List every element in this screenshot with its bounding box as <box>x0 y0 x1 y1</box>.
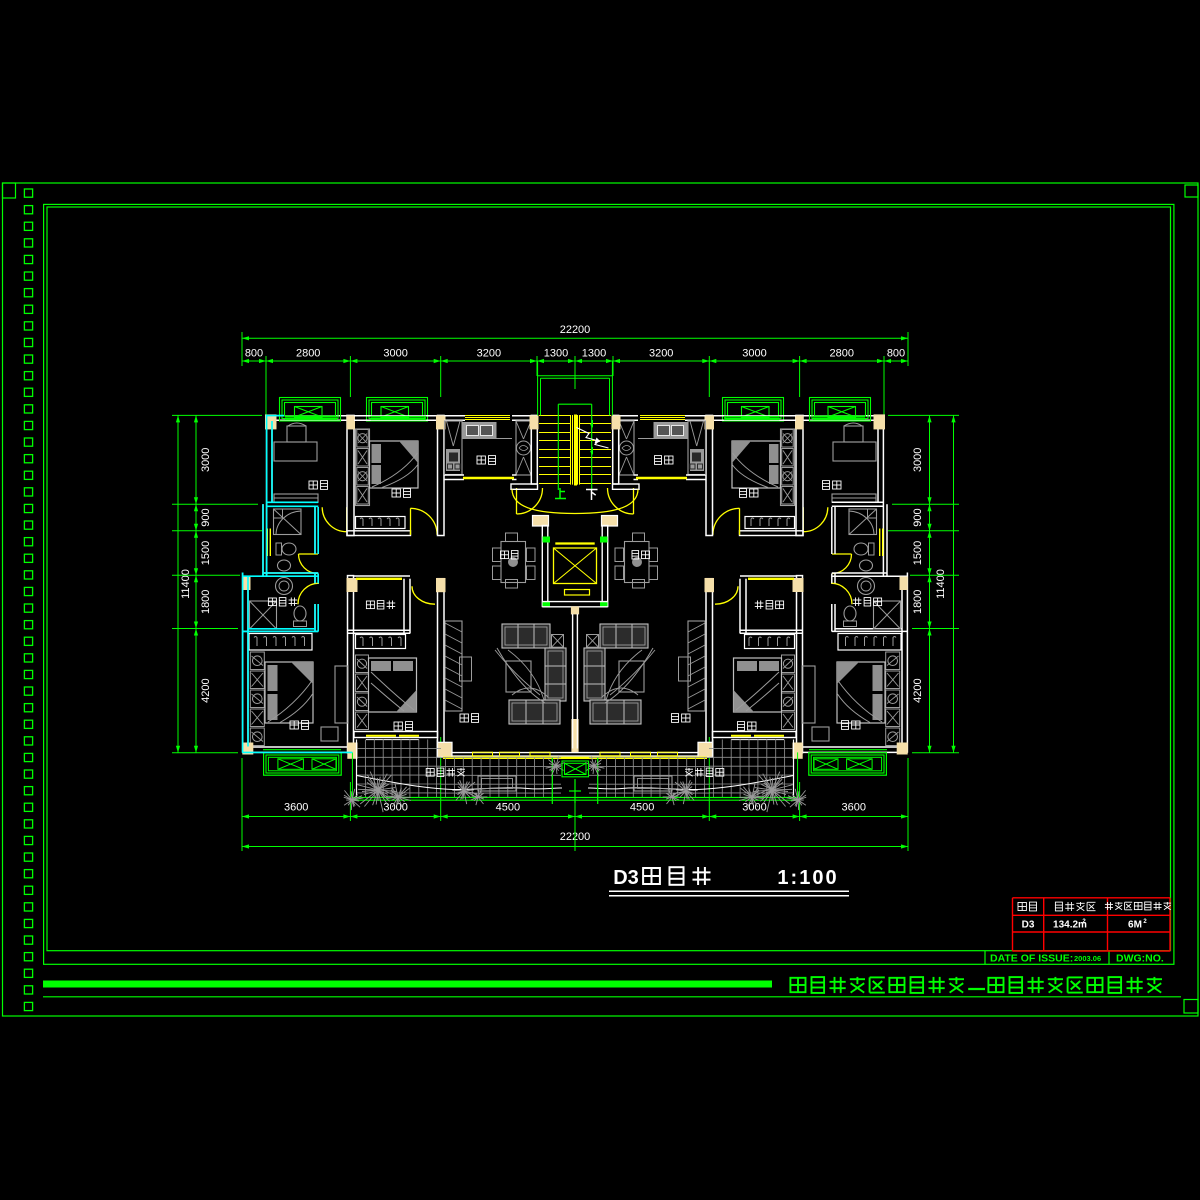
svg-text:3000: 3000 <box>383 348 407 360</box>
svg-text:1300: 1300 <box>582 348 606 360</box>
svg-text:1500: 1500 <box>200 541 212 565</box>
svg-text:3600: 3600 <box>842 802 866 814</box>
svg-text:900: 900 <box>200 508 212 526</box>
svg-text:DATE OF ISSUE:: DATE OF ISSUE: <box>990 953 1073 965</box>
svg-text:2800: 2800 <box>296 348 320 360</box>
svg-text:1300: 1300 <box>544 348 568 360</box>
svg-text:3000: 3000 <box>200 448 212 472</box>
svg-text:D3: D3 <box>1022 920 1035 931</box>
svg-text:DWG:NO.: DWG:NO. <box>1116 953 1164 965</box>
svg-text:4200: 4200 <box>912 678 924 702</box>
svg-text:1800: 1800 <box>912 590 924 614</box>
svg-text:2003.06: 2003.06 <box>1074 954 1101 963</box>
svg-text:D3: D3 <box>613 867 639 889</box>
svg-text:4500: 4500 <box>496 802 520 814</box>
svg-text:1:100: 1:100 <box>777 867 838 889</box>
svg-text:22200: 22200 <box>560 324 591 336</box>
svg-text:4500: 4500 <box>630 802 654 814</box>
svg-text:4200: 4200 <box>200 678 212 702</box>
svg-text:2800: 2800 <box>830 348 854 360</box>
svg-text:3600: 3600 <box>284 802 308 814</box>
svg-text:800: 800 <box>887 348 905 360</box>
svg-text:800: 800 <box>245 348 263 360</box>
svg-text:3200: 3200 <box>477 348 501 360</box>
svg-text:3000: 3000 <box>912 448 924 472</box>
svg-text:1500: 1500 <box>912 541 924 565</box>
svg-text:3000: 3000 <box>742 348 766 360</box>
svg-text:1800: 1800 <box>200 590 212 614</box>
svg-text:6M: 6M <box>1128 920 1142 931</box>
svg-text:3200: 3200 <box>649 348 673 360</box>
svg-text:11400: 11400 <box>935 569 947 599</box>
svg-text:11400: 11400 <box>180 569 192 599</box>
svg-text:900: 900 <box>912 508 924 526</box>
